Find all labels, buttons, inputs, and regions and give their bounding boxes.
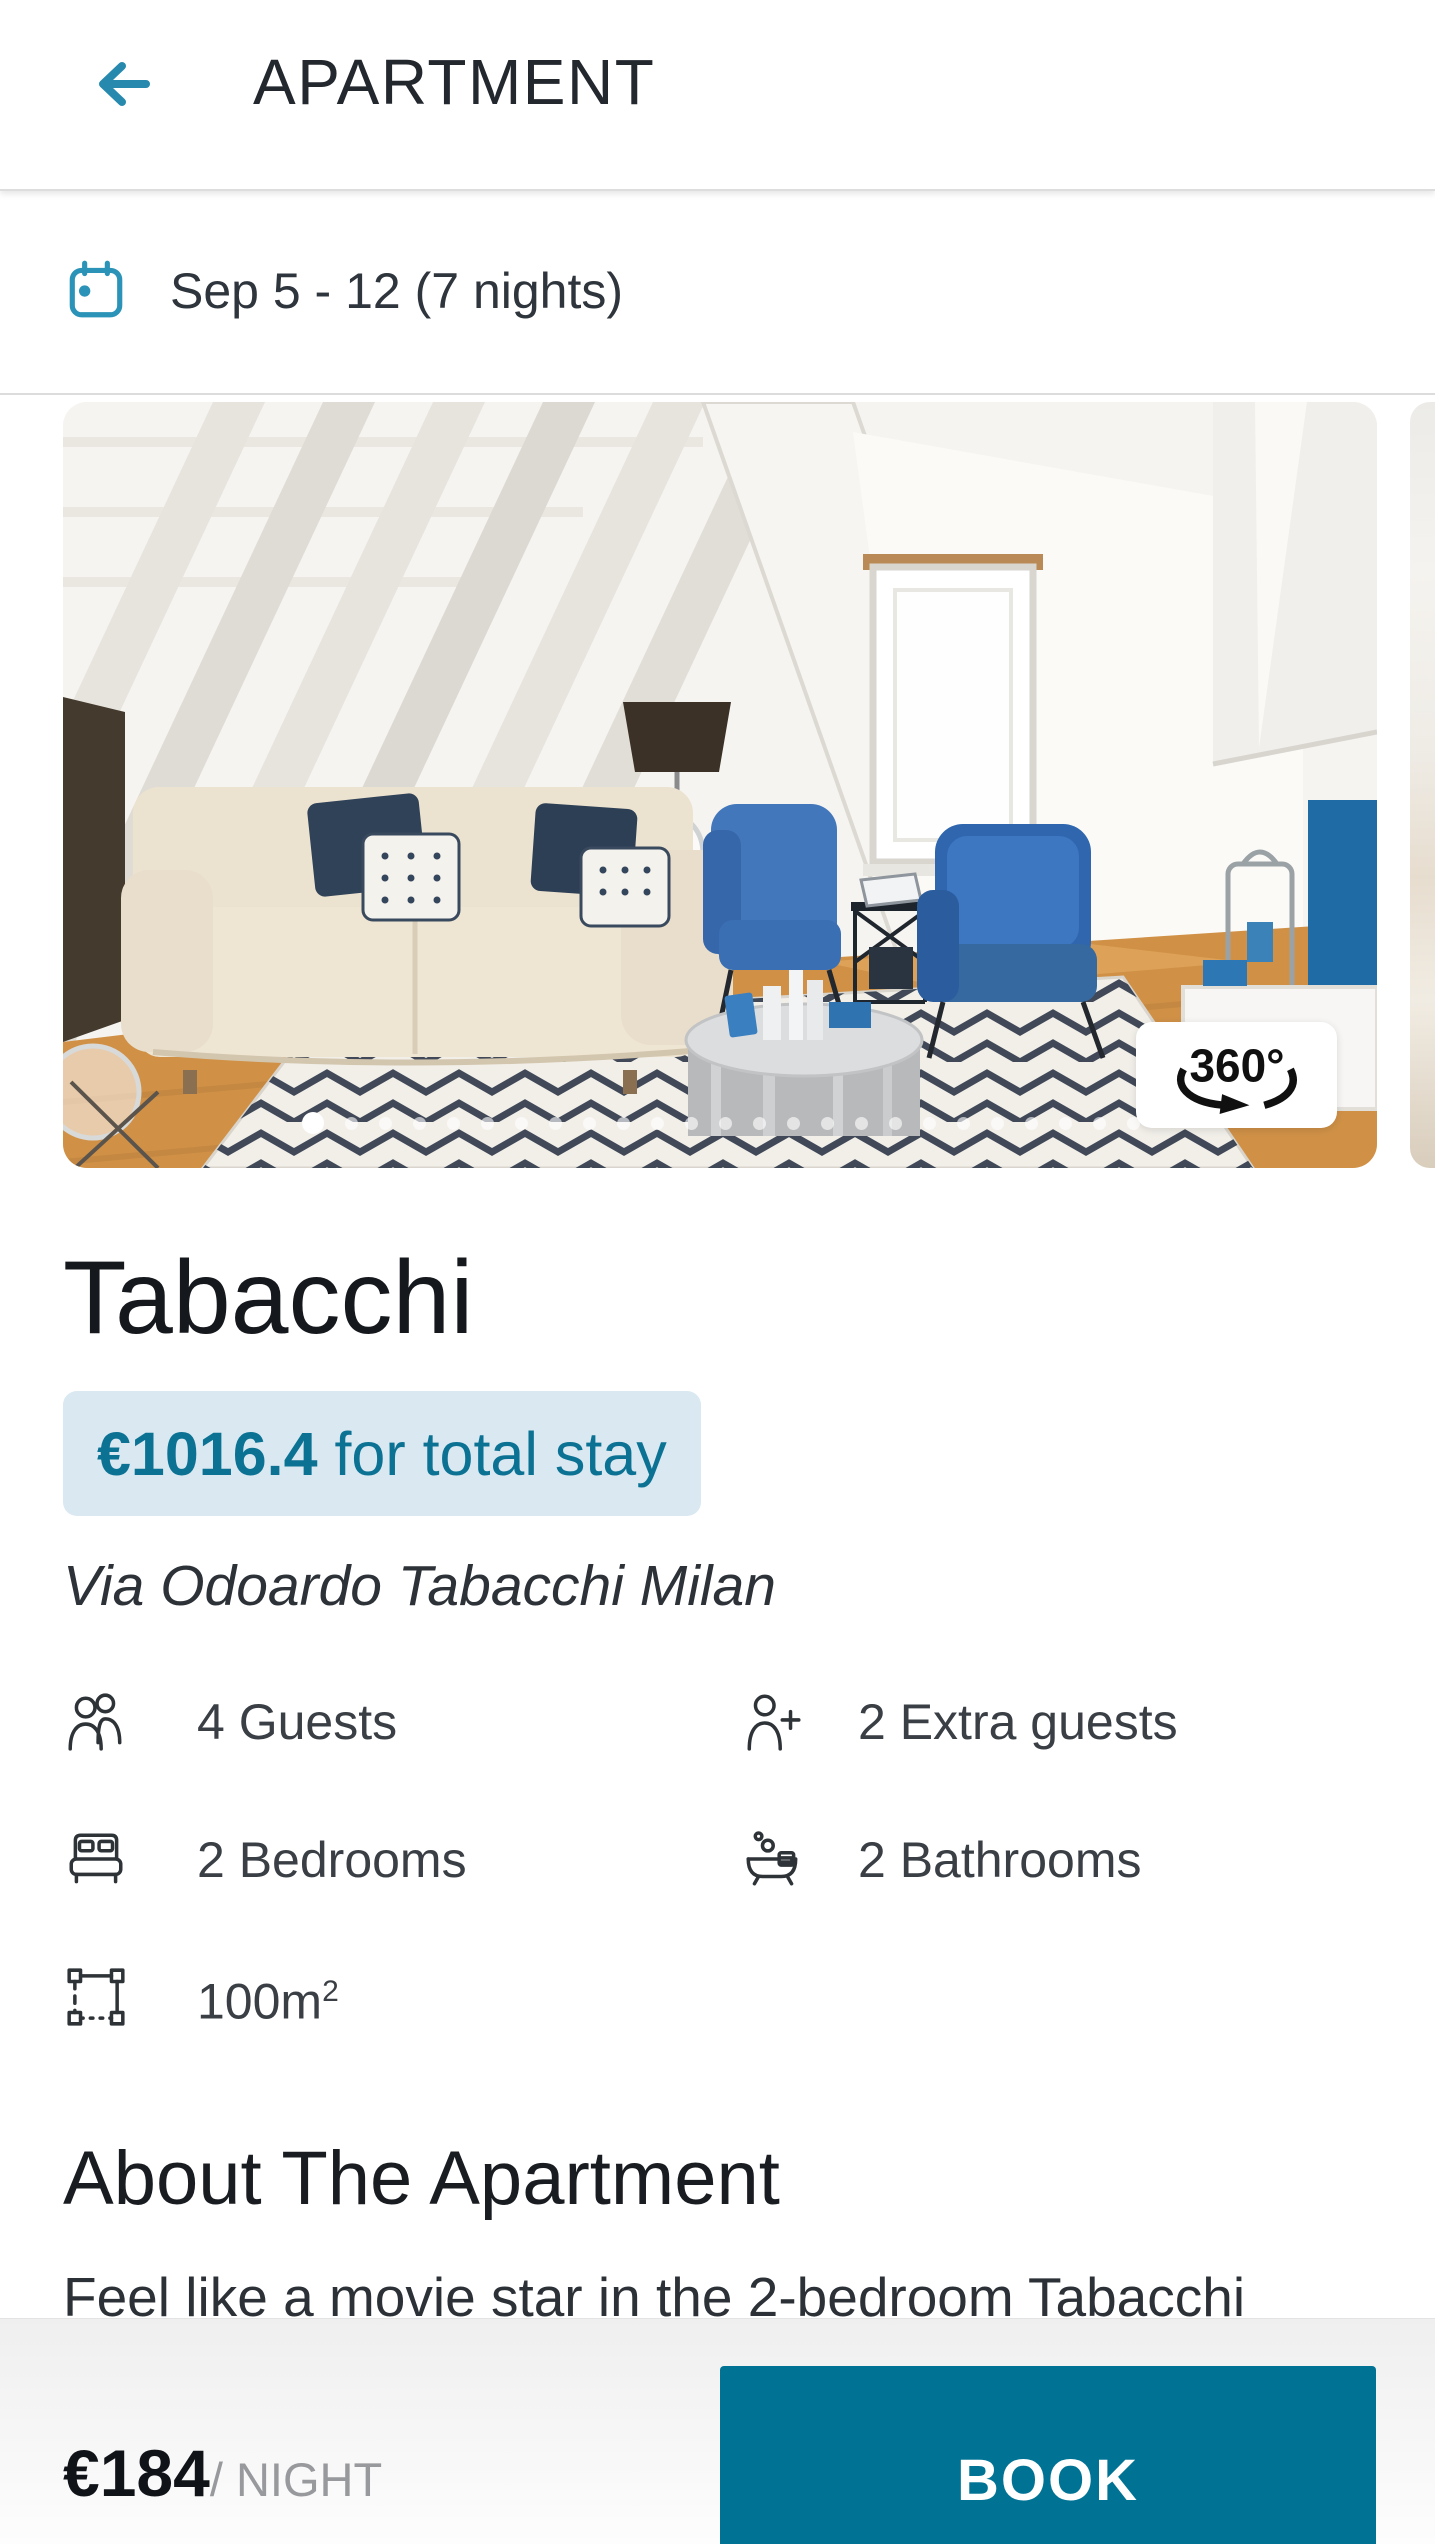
booking-dates-text: Sep 5 - 12 (7 nights) — [170, 261, 623, 321]
carousel-dot[interactable] — [889, 1117, 902, 1130]
carousel-dot[interactable] — [1093, 1117, 1106, 1130]
carousel-dot[interactable] — [719, 1117, 732, 1130]
carousel-dot[interactable] — [1127, 1117, 1140, 1130]
carousel-dot[interactable] — [583, 1117, 596, 1130]
amenity-label: 2 Bedrooms — [197, 1827, 467, 1893]
carousel-dot[interactable] — [923, 1117, 936, 1130]
calendar-icon — [63, 257, 129, 328]
carousel-dot[interactable] — [515, 1117, 528, 1130]
total-price-suffix: for total stay — [318, 1419, 667, 1489]
bath-icon — [740, 1827, 806, 1893]
amenity-label: 2 Extra guests — [858, 1689, 1178, 1755]
view-360-badge[interactable]: 360° — [1136, 1022, 1337, 1128]
header: APARTMENT — [0, 0, 1435, 191]
next-photo-preview[interactable] — [1410, 402, 1435, 1168]
arrow-left-icon — [90, 100, 154, 115]
carousel-dot[interactable] — [481, 1117, 494, 1130]
nightly-price: €184/ NIGHT — [63, 2435, 382, 2511]
carousel-dot[interactable] — [651, 1117, 664, 1130]
carousel-dot[interactable] — [345, 1117, 358, 1130]
carousel-dot[interactable] — [753, 1117, 766, 1130]
carousel-dots[interactable] — [302, 1112, 1140, 1134]
extra-guests-icon — [740, 1689, 806, 1755]
amenity-bedrooms: 2 Bedrooms — [63, 1827, 467, 1893]
carousel-dot[interactable] — [855, 1117, 868, 1130]
carousel-dot[interactable] — [821, 1117, 834, 1130]
about-heading: About The Apartment — [63, 2136, 780, 2222]
carousel-dot[interactable] — [787, 1117, 800, 1130]
total-price-badge: €1016.4 for total stay — [63, 1391, 701, 1516]
amenity-label: 2 Bathrooms — [858, 1827, 1141, 1893]
carousel-dot[interactable] — [957, 1117, 970, 1130]
carousel-dot[interactable] — [1025, 1117, 1038, 1130]
apartment-detail-screen: APARTMENT Sep 5 - 12 (7 nights) — [0, 0, 1435, 2544]
carousel-dot[interactable] — [991, 1117, 1004, 1130]
svg-text:360°: 360° — [1189, 1039, 1284, 1091]
carousel-dot[interactable] — [685, 1117, 698, 1130]
listing-address: Via Odoardo Tabacchi Milan — [63, 1552, 776, 1620]
carousel-dot[interactable] — [447, 1117, 460, 1130]
guests-icon — [63, 1689, 129, 1755]
carousel-dot[interactable] — [302, 1112, 324, 1134]
amenity-area: 100m2 — [63, 1964, 339, 2030]
amenity-guests: 4 Guests — [63, 1689, 397, 1755]
bed-icon — [63, 1827, 129, 1893]
carousel-dot[interactable] — [1059, 1117, 1072, 1130]
bottom-bar: €184/ NIGHT BOOK — [0, 2318, 1435, 2544]
book-button[interactable]: BOOK — [720, 2366, 1376, 2544]
carousel-dot[interactable] — [617, 1117, 630, 1130]
page-title: APARTMENT — [253, 46, 655, 118]
back-button[interactable] — [90, 56, 154, 112]
amenity-extra-guests: 2 Extra guests — [740, 1689, 1178, 1755]
area-icon — [63, 1964, 129, 2030]
photo-carousel: 360° — [0, 402, 1435, 1168]
per-night-label: / NIGHT — [210, 2453, 382, 2506]
amenity-label: 100m2 — [197, 1959, 339, 2035]
amenity-bathrooms: 2 Bathrooms — [740, 1827, 1141, 1893]
total-price-amount: €1016.4 — [97, 1419, 318, 1489]
carousel-dot[interactable] — [379, 1117, 392, 1130]
carousel-dot[interactable] — [549, 1117, 562, 1130]
listing-title: Tabacchi — [63, 1242, 473, 1354]
booking-dates-row[interactable]: Sep 5 - 12 (7 nights) — [0, 191, 1435, 395]
carousel-dot[interactable] — [413, 1117, 426, 1130]
amenity-label: 4 Guests — [197, 1689, 397, 1755]
nightly-price-amount: €184 — [63, 2436, 210, 2510]
rotate-360-icon: 360° — [1162, 1032, 1312, 1119]
